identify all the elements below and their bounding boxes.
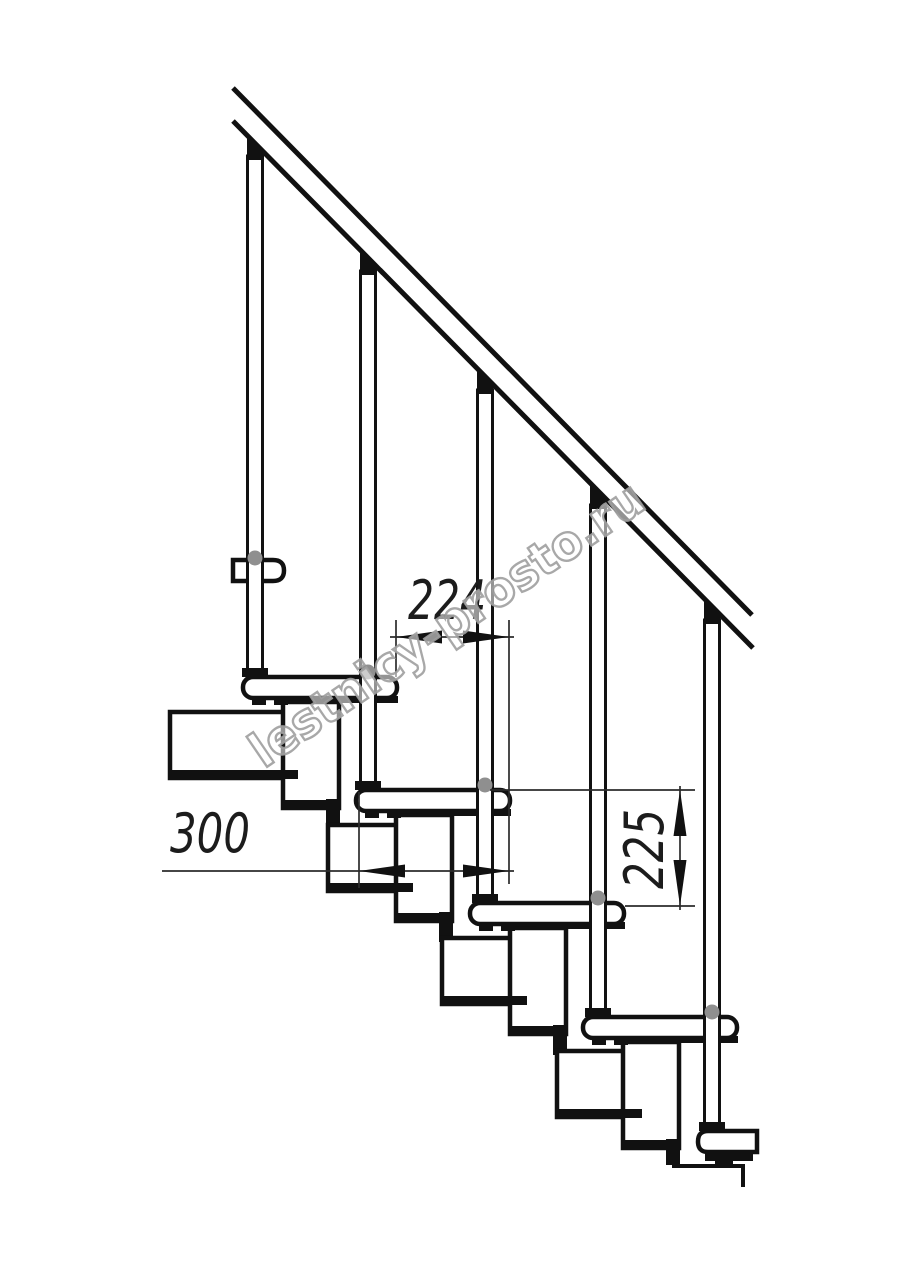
staircase-drawing-page: 224 300 225 lestnicy-prosto.ru bbox=[0, 0, 914, 1280]
module-box bbox=[328, 825, 404, 891]
cut-module-remnant bbox=[672, 1166, 743, 1187]
module-box bbox=[442, 938, 518, 1004]
baluster-4 bbox=[591, 505, 606, 1017]
tread-5-partial bbox=[698, 1131, 757, 1152]
dimension-label-depth: 300 bbox=[170, 802, 250, 865]
module-tube bbox=[623, 1042, 679, 1148]
support-module-chain bbox=[170, 702, 743, 1187]
baluster-1 bbox=[248, 156, 263, 677]
staircase-drawing: 224 300 225 lestnicy-prosto.ru bbox=[0, 0, 914, 1280]
dimension-label-rise: 225 bbox=[613, 809, 676, 889]
baluster-5 bbox=[705, 620, 720, 1131]
baluster-3 bbox=[478, 390, 493, 903]
module-tube bbox=[510, 928, 566, 1034]
